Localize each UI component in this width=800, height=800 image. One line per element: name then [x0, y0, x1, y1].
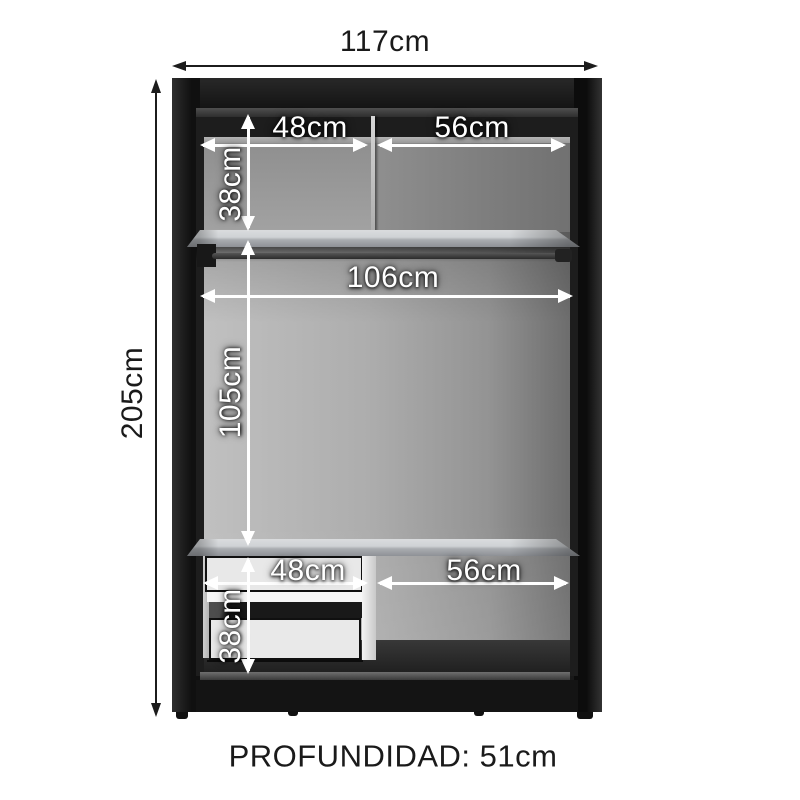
wardrobe-foot	[474, 711, 484, 716]
top-section-divider	[371, 116, 375, 232]
bottom-left-width-label: 48cm	[270, 556, 345, 586]
wardrobe-foot	[577, 712, 593, 719]
hanging-height-label: 105cm	[216, 346, 246, 439]
wardrobe-foot	[176, 712, 188, 719]
wardrobe-top-beam	[172, 78, 602, 108]
depth-label: PROFUNDIDAD: 51cm	[229, 741, 558, 772]
bottom-right-width-label: 56cm	[446, 556, 521, 586]
drawer-unit-right-side	[362, 556, 376, 660]
wardrobe-right-post	[574, 78, 602, 712]
bottom-section-height-label: 38cm	[216, 588, 246, 663]
top-left-width-label: 48cm	[272, 113, 347, 143]
top-section-height-label: 38cm	[216, 146, 246, 221]
overall-width-label: 117cm	[340, 27, 430, 57]
top-section-right-panel	[375, 143, 570, 232]
top-right-width-label: 56cm	[434, 113, 509, 143]
hanging-rod	[212, 253, 564, 259]
overall-height-label: 205cm	[118, 347, 148, 440]
hanging-rod-right-bracket	[555, 249, 572, 262]
rod-width-label: 106cm	[347, 263, 440, 293]
wardrobe-dimension-diagram: 117cm 205cm 48cm 56cm 38cm 106cm 105cm 4…	[0, 0, 800, 800]
base-plinth	[196, 680, 578, 712]
wardrobe-foot	[288, 711, 298, 716]
base-top-edge	[200, 672, 570, 680]
